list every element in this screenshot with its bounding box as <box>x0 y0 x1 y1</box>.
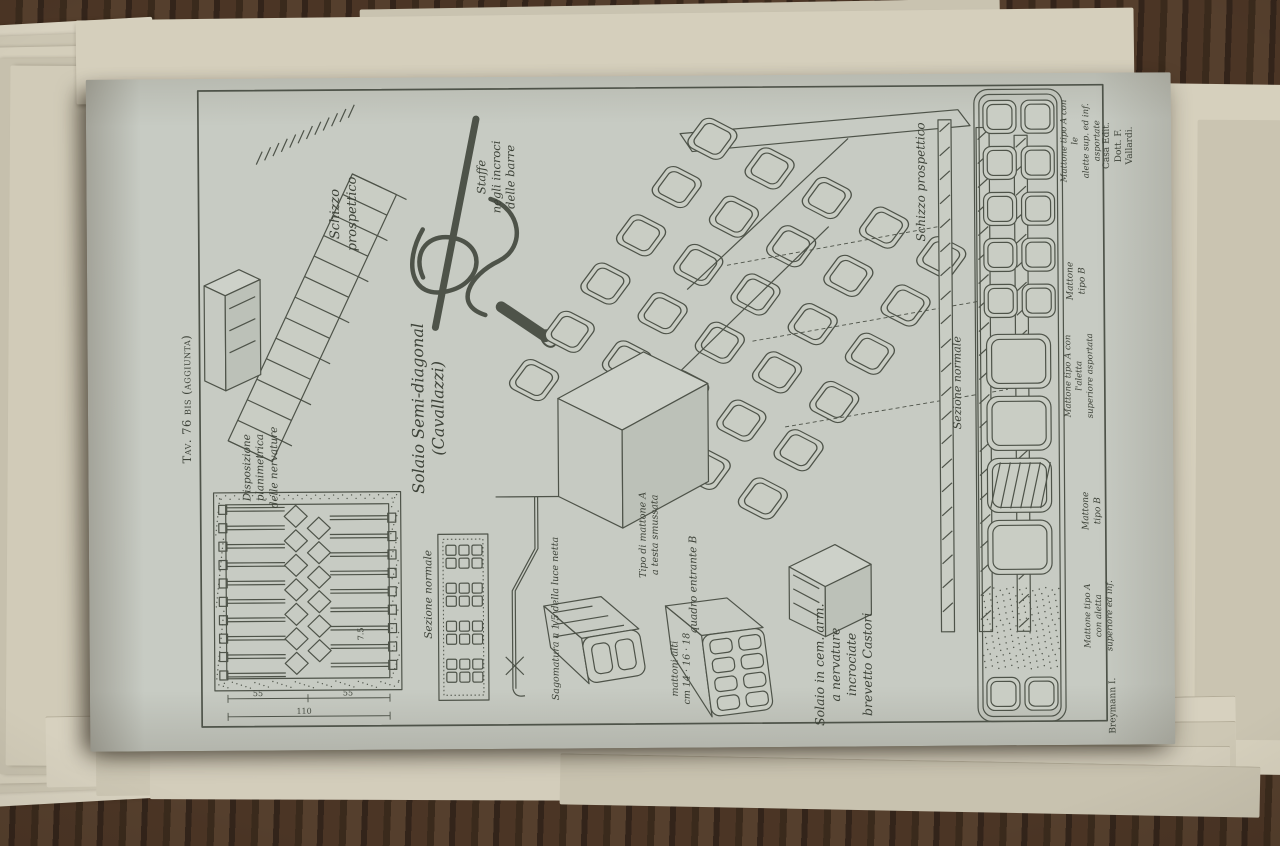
plate-page: Tav. 76 bis (aggiunta) Schizzo prospetti… <box>86 72 1176 752</box>
label-schizzo-right: Schizzo prospettico <box>913 122 929 241</box>
label-mattone-b-1: Mattone tipo B <box>1065 262 1088 301</box>
label-tipo-a: Tipo di mattone A a testa smussata <box>637 492 662 578</box>
author-imprint: Breymann I. <box>1108 678 1120 734</box>
label-mattone-b-2: Mattone tipo B <box>1081 492 1104 531</box>
label-mattone-a-3: Mattone tipo A con aletta superiore ed i… <box>1083 578 1116 653</box>
support-wall-drawing <box>558 351 709 528</box>
label-sagomatura: Sagomatura a 1/5 della luce netta <box>550 537 563 701</box>
plan-drawing <box>214 492 403 721</box>
title-cavallazzi: Solaio Semi-diagonal (Cavallazzi) <box>408 323 450 494</box>
page-edge-sheet <box>1194 120 1280 740</box>
label-disposizione: Disposizione planimetrica delle nervatur… <box>241 427 282 509</box>
dim-pitch: 7.5 <box>356 627 366 640</box>
label-sezione-right: Sezione normale <box>950 336 965 429</box>
label-sezione-left: Sezione normale <box>422 550 436 639</box>
dim-total: 110 <box>296 707 311 716</box>
title-castori: Solaio in cem. arm. a nervature incrocia… <box>811 603 876 726</box>
plate-drawing <box>86 72 1176 752</box>
label-mattone-a-1: Mattone tipo A con le alette sup. ed inf… <box>1059 96 1103 186</box>
label-quadro-b: quadro entrante B <box>687 536 701 634</box>
publisher-imprint: Casa Edit. Dott. F. Vallardi. <box>1102 119 1137 171</box>
dim-half-left: 55 <box>253 689 263 698</box>
dim-half-right: 55 <box>343 688 353 697</box>
label-schizzo-left: Schizzo prospettico <box>328 176 362 251</box>
book-photo: Tav. 76 bis (aggiunta) Schizzo prospetti… <box>0 0 1280 846</box>
normal-section-drawing <box>438 534 489 700</box>
label-mattoni-alti: mattoni alti cm 14 · 16 · 18 <box>669 633 694 705</box>
label-mattone-a-2: Mattone tipo A con l'aletta superiore as… <box>1063 329 1096 422</box>
plate-number: Tav. 76 bis (aggiunta) <box>179 335 195 464</box>
cavallazzi-perspective-drawing <box>203 104 408 462</box>
label-staffe: Staffe negli incroci delle barre <box>474 140 519 213</box>
